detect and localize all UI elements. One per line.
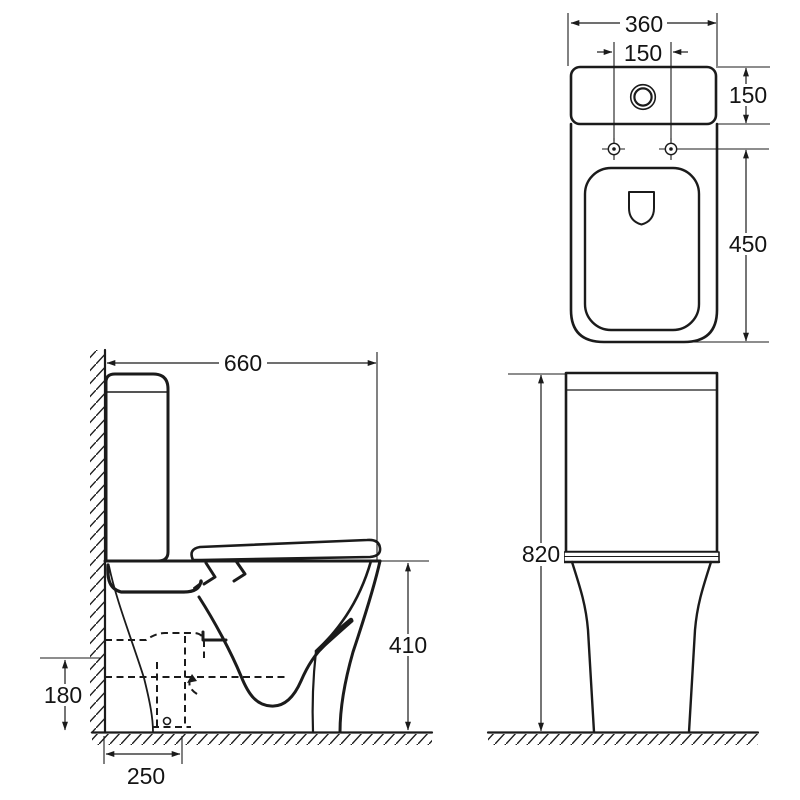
outlet-fixing-point <box>164 718 171 725</box>
dim-overall-width: 360 <box>571 11 716 37</box>
dim-label-overall-depth: 660 <box>224 350 262 376</box>
dim-label-bowl-height: 410 <box>389 632 427 658</box>
dim-cistern-depth: 150 <box>725 68 771 123</box>
technical-drawing-canvas: 360 150 150 450 <box>0 0 800 800</box>
side-view: 660 410 180 250 <box>40 350 432 789</box>
plan-view: 360 150 150 450 <box>568 11 771 342</box>
wall-hatching <box>90 350 105 733</box>
dim-label-overall-width: 360 <box>625 11 663 37</box>
technical-drawing-page: 360 150 150 450 <box>0 0 800 800</box>
front-body-outline <box>566 373 717 552</box>
bowl-front-outer-wall <box>340 561 380 732</box>
front-seat-rim <box>564 552 719 562</box>
front-pedestal-right <box>689 562 711 732</box>
bowl-front-inner-to-floor <box>313 651 316 732</box>
seat-lid <box>192 540 381 560</box>
dim-label-overall-height: 820 <box>522 541 560 567</box>
seat-hinge-left <box>204 563 215 584</box>
front-floor-hatching <box>488 734 758 745</box>
plan-flush-outlet <box>629 192 654 225</box>
dim-label-cistern-depth: 150 <box>729 82 767 108</box>
front-pedestal-left <box>572 562 594 732</box>
flush-channel <box>108 565 201 592</box>
hidden-outlet-lines <box>105 633 289 727</box>
bowl-front-inner-wall <box>316 561 371 651</box>
side-cistern-outline <box>106 374 168 561</box>
bowl-front-wall-shading <box>320 620 351 649</box>
side-floor-hatching <box>92 734 432 745</box>
seat-hinge-right <box>234 561 245 581</box>
dim-label-hole-spacing: 150 <box>624 40 662 66</box>
dim-overall-height: 820 <box>508 374 565 731</box>
dim-label-pan-length: 450 <box>729 231 767 257</box>
dim-label-outlet-setout: 250 <box>127 763 165 789</box>
dim-bowl-height: 410 <box>385 563 432 730</box>
dim-pan-length: 450 <box>725 150 771 341</box>
front-view: 820 <box>488 373 758 745</box>
dim-hole-spacing: 150 <box>597 40 688 66</box>
dim-label-outlet-height: 180 <box>44 682 82 708</box>
bowl-interior-curve <box>199 597 352 706</box>
